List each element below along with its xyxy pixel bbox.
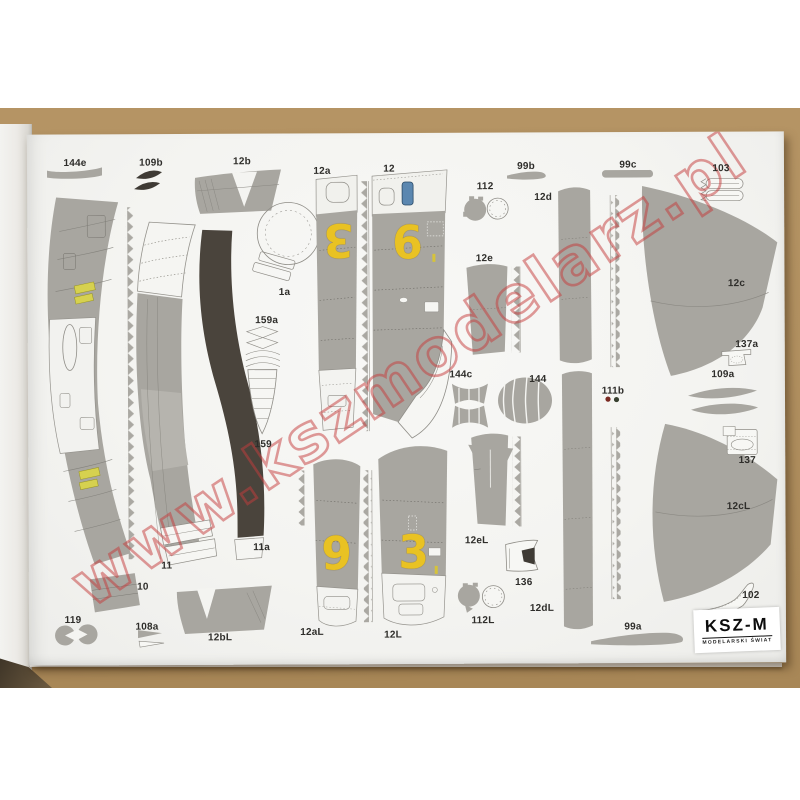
part-label-12a: 12a: [313, 166, 330, 177]
part-label-109b: 109b: [139, 158, 163, 169]
part-label-12: 12: [383, 164, 395, 175]
part-label-99c: 99c: [619, 159, 636, 170]
part-label-136: 136: [515, 577, 532, 588]
tactical-number-3: 3: [323, 217, 354, 263]
part-label-11a: 11a: [253, 542, 270, 553]
part-label-12c: 12c: [728, 278, 745, 289]
tactical-number-3: 3: [398, 529, 429, 575]
part-label-159a: 159a: [255, 315, 278, 326]
part-label-11: 11: [161, 561, 172, 572]
part-label-12e: 12e: [476, 253, 493, 264]
part-label-108a: 108a: [135, 622, 158, 633]
part-label-12L: 12L: [384, 630, 402, 641]
part-label-144e: 144e: [63, 158, 86, 169]
part-label-12dL: 12dL: [530, 603, 554, 614]
publisher-logo: KSZ-M MODELARSKI ŚWIAT: [693, 607, 781, 653]
publisher-tagline: MODELARSKI ŚWIAT: [702, 635, 772, 646]
part-label-144: 144: [529, 374, 546, 385]
part-label-159: 159: [255, 439, 272, 450]
part-label-119: 119: [65, 615, 82, 626]
part-label-12b: 12b: [233, 156, 251, 167]
part-label-12eL: 12eL: [465, 535, 489, 546]
tactical-number-9: 9: [392, 218, 423, 264]
part-label-112: 112: [477, 181, 494, 192]
part-label-111b: 111b: [602, 386, 625, 397]
part-label-1a: 1a: [279, 287, 291, 298]
tactical-number-9: 9: [321, 530, 352, 576]
part-label-layer: 144e109b12b12a1299b11212d99c1031a12e12c1…: [27, 131, 786, 665]
part-label-137a: 137a: [735, 339, 758, 350]
part-label-10: 10: [137, 582, 149, 593]
part-label-99a: 99a: [624, 621, 641, 632]
part-label-12d: 12d: [534, 192, 552, 203]
model-sheet-page: www.kszmodelarz.pl 144e109b12b12a1299b11…: [27, 131, 786, 665]
part-label-144c: 144c: [449, 369, 472, 380]
part-label-12aL: 12aL: [300, 627, 324, 638]
publisher-name: KSZ-M: [705, 615, 769, 634]
part-label-12cL: 12cL: [727, 501, 751, 512]
part-label-103: 103: [712, 163, 729, 174]
part-label-99b: 99b: [517, 161, 535, 172]
part-label-109a: 109a: [711, 369, 734, 380]
part-label-112L: 112L: [471, 615, 494, 626]
photo-of-model-sheet: www.kszmodelarz.pl 144e109b12b12a1299b11…: [0, 0, 800, 800]
part-label-12bL: 12bL: [208, 632, 232, 643]
part-label-102: 102: [742, 590, 759, 601]
part-label-137: 137: [739, 455, 756, 466]
